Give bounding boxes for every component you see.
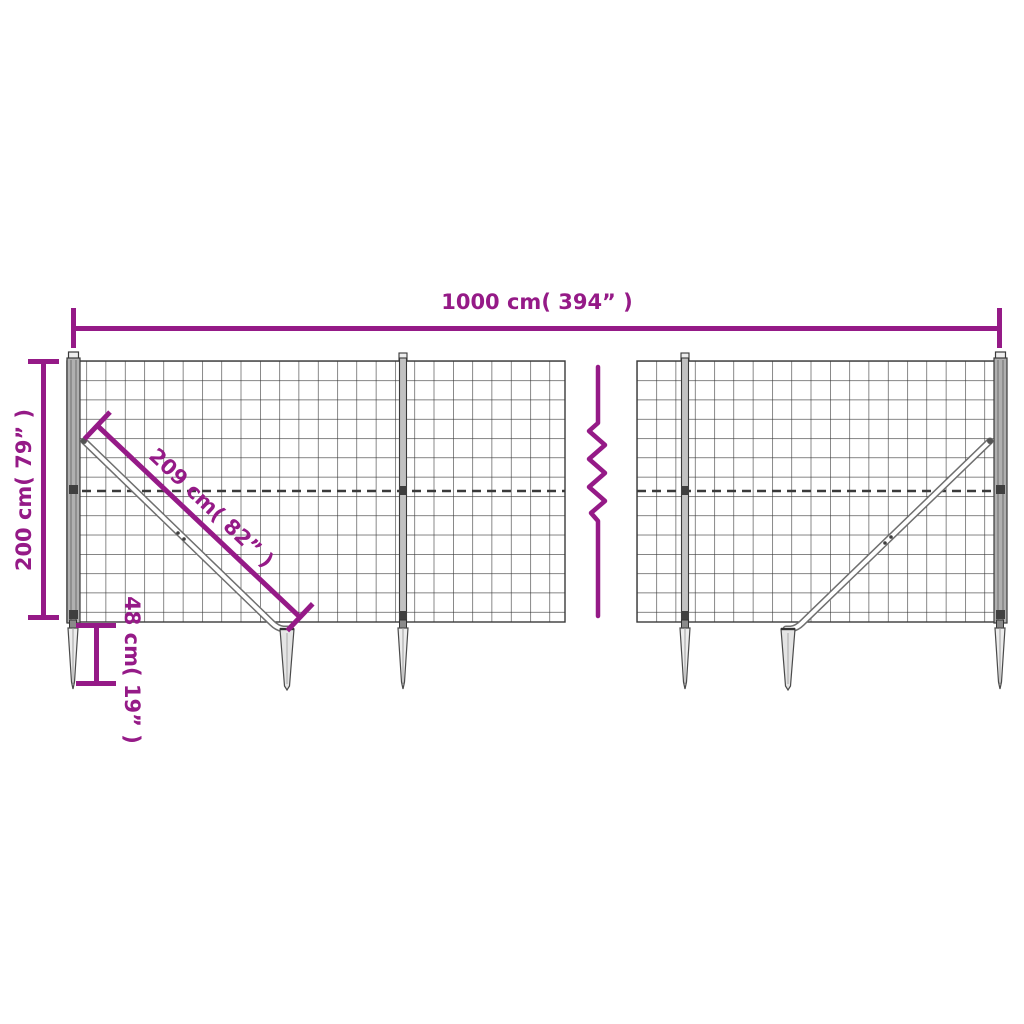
- break-symbol: [589, 367, 605, 616]
- anchor-depth-tick-top: [76, 623, 116, 628]
- anchor-depth-tick-bottom: [76, 681, 116, 686]
- post-ground-spikes: [68, 620, 1005, 689]
- ground-spike: [398, 620, 408, 689]
- post-middle-right: [681, 353, 689, 623]
- mesh-panel-right: [637, 361, 1005, 622]
- post-middle-left: [399, 353, 407, 623]
- brace-anchor-spike-right: [781, 629, 795, 690]
- post-right-end: [994, 352, 1007, 623]
- post-clamp: [996, 485, 1005, 494]
- post-clamp: [681, 486, 689, 495]
- width-dimension-tick-right: [997, 308, 1002, 348]
- height-dimension-tick-top: [28, 359, 59, 364]
- post-clamp: [681, 611, 689, 620]
- post-left-end: [67, 352, 80, 623]
- fence-dimension-diagram: 1000 cm( 394” ) 200 cm( 79” ) 48 cm( 19”…: [0, 0, 1024, 1024]
- height-dimension-label: 200 cm( 79” ): [12, 409, 36, 571]
- width-dimension-label: 1000 cm( 394” ): [441, 290, 633, 314]
- anchor-depth-dimension-line: [94, 626, 99, 683]
- post-clamp: [996, 610, 1005, 619]
- height-dimension-tick-bottom: [28, 615, 59, 620]
- ground-spike: [995, 620, 1005, 689]
- ground-spike: [680, 620, 690, 689]
- width-dimension-tick-left: [71, 308, 76, 348]
- post-clamp: [399, 486, 407, 495]
- post-clamp: [69, 485, 78, 494]
- brace-post-fitting: [987, 438, 993, 444]
- ground-spike: [68, 620, 78, 689]
- post-clamp: [69, 610, 78, 619]
- anchor-depth-dimension-label: 48 cm( 19” ): [120, 596, 144, 744]
- post-clamp: [399, 611, 407, 620]
- width-dimension-line: [75, 326, 999, 331]
- height-dimension-line: [41, 361, 46, 619]
